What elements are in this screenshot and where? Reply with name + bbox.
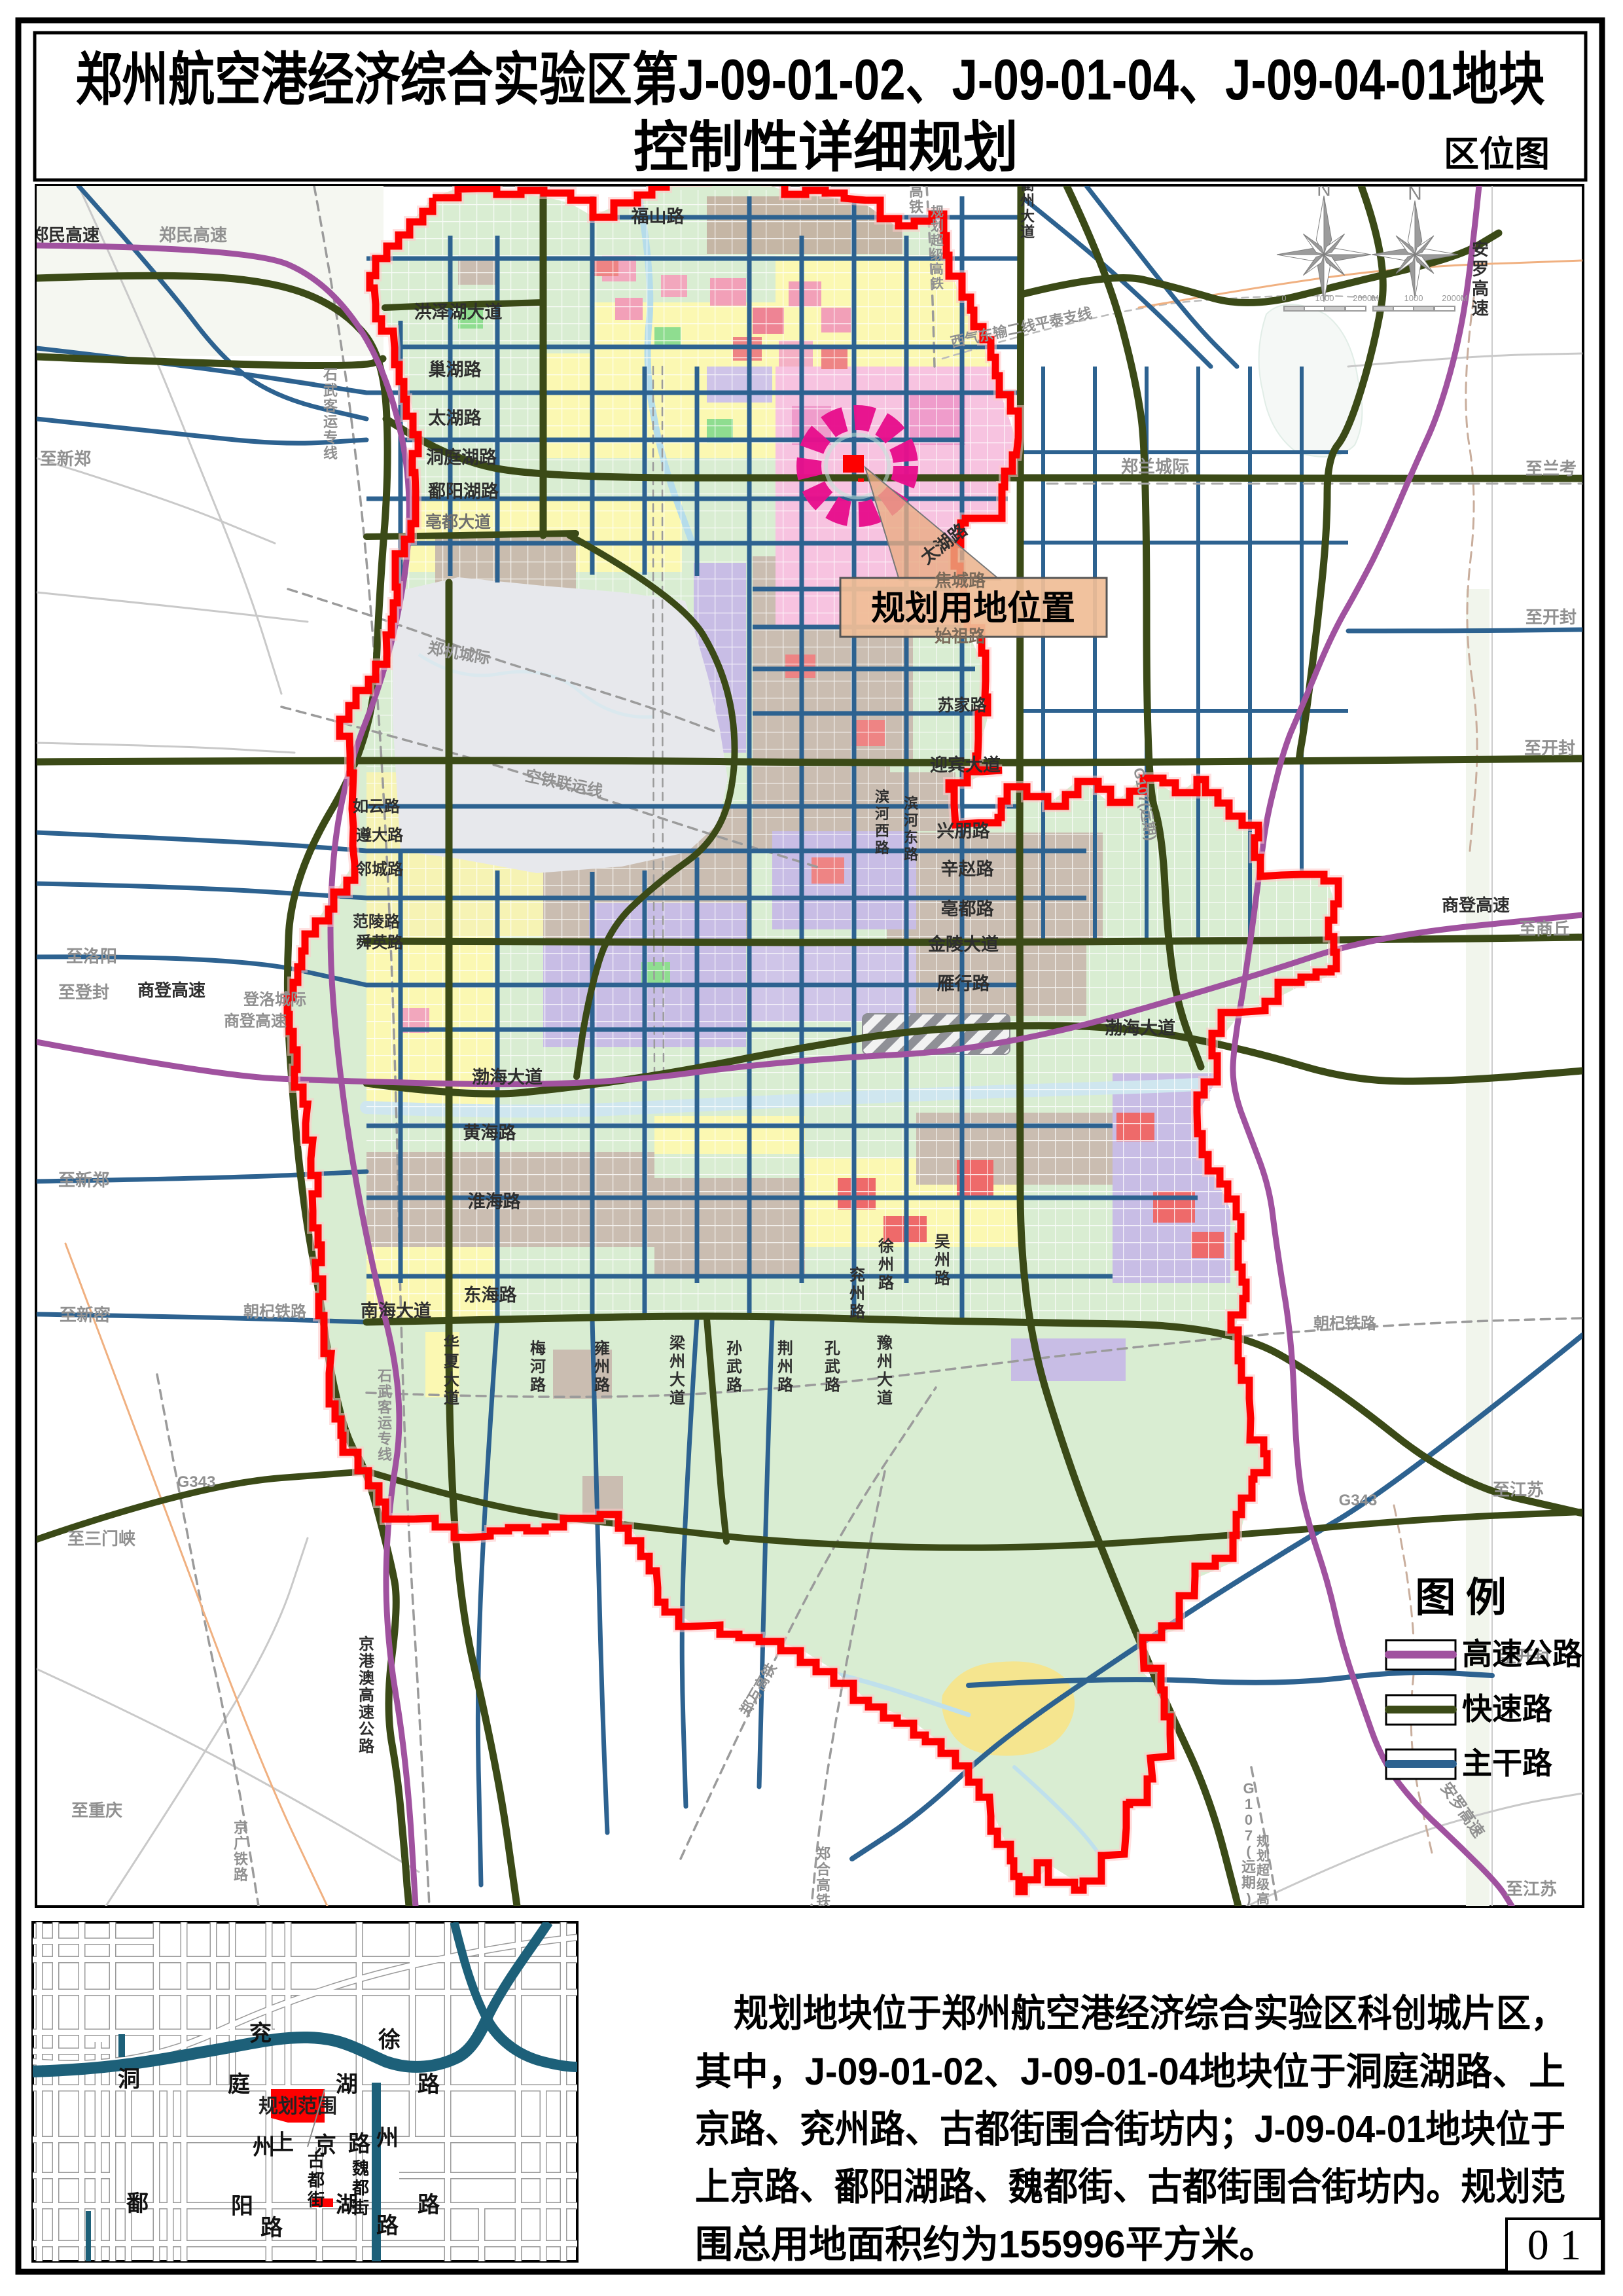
svg-text:规划用地位置: 规划用地位置 [871,590,1075,628]
svg-text:郑兰城际: 郑兰城际 [1121,457,1189,476]
svg-text:渤海大道: 渤海大道 [472,1067,543,1087]
svg-text:商登高速: 商登高速 [224,1012,287,1030]
svg-text:洪泽湖大道: 洪泽湖大道 [414,302,503,322]
svg-text:路: 路 [376,2214,399,2238]
svg-text:亳都大道: 亳都大道 [425,512,491,531]
svg-text:路: 路 [418,2193,440,2217]
svg-text:朝杞铁路: 朝杞铁路 [1313,1314,1377,1333]
svg-text:吴州路: 吴州路 [935,1233,951,1287]
svg-text:0 1: 0 1 [1527,2221,1582,2269]
svg-text:安罗高速: 安罗高速 [1472,240,1489,318]
svg-text:路: 路 [260,2215,283,2240]
svg-text:G343: G343 [177,1473,216,1491]
svg-text:州: 州 [376,2126,399,2151]
svg-text:1000: 1000 [1404,293,1423,303]
svg-text:规划地块位于郑州航空港经济综合实验区科创城片区，: 规划地块位于郑州航空港经济综合实验区科创城片区， [695,1992,1565,2035]
svg-text:至开封: 至开封 [1525,607,1577,627]
svg-text:徐: 徐 [378,2028,401,2053]
svg-text:郑州航空港经济综合实验区第J-09-01-02、J-09-0: 郑州航空港经济综合实验区第J-09-01-02、J-09-01-04、J-09-… [76,47,1545,112]
svg-text:太湖路: 太湖路 [429,408,482,428]
svg-text:商登高速: 商登高速 [1442,895,1510,915]
svg-text:京广铁路: 京广铁路 [234,1820,249,1883]
svg-text:高铁: 高铁 [909,183,923,215]
svg-text:快速路: 快速路 [1462,1693,1553,1726]
svg-text:鄱阳湖路: 鄱阳湖路 [427,481,499,501]
svg-text:如云路: 如云路 [353,797,401,816]
svg-text:范陵路: 范陵路 [353,912,401,931]
svg-text:巢湖路: 巢湖路 [429,359,482,380]
svg-text:魏都街: 魏都街 [351,2159,369,2217]
svg-text:庭: 庭 [228,2072,250,2097]
svg-text:孔武路: 孔武路 [825,1340,841,1394]
svg-text:阳: 阳 [231,2194,253,2219]
svg-text:至重庆: 至重庆 [71,1801,122,1820]
svg-text:主干路: 主干路 [1462,1747,1553,1780]
svg-text:规划范围: 规划范围 [259,2096,337,2117]
svg-text:邻城路: 邻城路 [356,860,404,878]
svg-text:至三门峡: 至三门峡 [67,1529,136,1549]
svg-text:郑民高速: 郑民高速 [159,225,227,245]
svg-text:福山路: 福山路 [631,206,685,226]
svg-text:雍州路: 雍州路 [594,1339,611,1394]
svg-text:古都街: 古都街 [307,2151,325,2210]
svg-text:控制性详细规划: 控制性详细规划 [633,117,1018,178]
svg-text:徐州路: 徐州路 [878,1237,895,1292]
svg-text:至新密: 至新密 [60,1305,111,1325]
svg-text:至开封: 至开封 [1524,738,1575,758]
svg-text:兖州路: 兖州路 [849,1266,866,1321]
svg-text:滨河西路: 滨河西路 [875,789,890,856]
svg-text:雁行路: 雁行路 [937,973,991,994]
svg-text:G343: G343 [1339,1492,1378,1509]
svg-text:登洛城际: 登洛城际 [243,990,306,1009]
svg-text:路: 路 [418,2072,440,2097]
svg-text:兖: 兖 [249,2021,272,2046]
svg-text:洞庭湖路: 洞庭湖路 [426,447,497,467]
svg-text:至江苏: 至江苏 [1493,1480,1544,1499]
svg-text:苏家路: 苏家路 [937,696,987,715]
svg-text:图 例: 图 例 [1415,1575,1507,1621]
svg-text:至新郑: 至新郑 [40,449,91,469]
svg-text:至登封: 至登封 [58,982,109,1002]
svg-text:兴朋路: 兴朋路 [937,821,991,841]
svg-text:至商丘: 至商丘 [1519,919,1570,939]
svg-text:2000M: 2000M [1442,293,1468,303]
svg-text:洞: 洞 [118,2067,140,2092]
svg-text:滨河东路: 滨河东路 [904,795,919,863]
svg-text:0: 0 [1370,293,1375,303]
svg-text:至兰考: 至兰考 [1525,459,1577,478]
svg-text:郑民高速: 郑民高速 [31,225,99,245]
svg-text:郑合高铁: 郑合高铁 [816,1846,831,1909]
svg-text:舜英路: 舜英路 [356,933,404,952]
svg-text:围总用地面积约为155996平方米。: 围总用地面积约为155996平方米。 [695,2223,1277,2266]
svg-text:黄海路: 黄海路 [463,1122,517,1143]
svg-text:迎宾大道: 迎宾大道 [930,755,1001,775]
svg-text:至洛阳: 至洛阳 [66,946,117,966]
svg-text:规划超级高铁: 规划超级高铁 [930,204,944,291]
svg-text:上京路、鄱阳湖路、魏都街、古都街围合街坊内。规划范: 上京路、鄱阳湖路、魏都街、古都街围合街坊内。规划范 [695,2166,1565,2208]
svg-text:鄱: 鄱 [126,2191,149,2216]
svg-text:遵大路: 遵大路 [356,826,404,844]
svg-text:淮海路: 淮海路 [468,1191,522,1211]
svg-text:石武客运专线: 石武客运专线 [377,1368,393,1463]
svg-text:0: 0 [1281,293,1286,303]
svg-text:始祖路: 始祖路 [935,626,986,646]
svg-text:京港澳高速公路: 京港澳高速公路 [359,1635,375,1755]
svg-text:石武客运专线: 石武客运专线 [323,367,338,461]
svg-text:高速公路: 高速公路 [1462,1638,1583,1671]
svg-text:湖: 湖 [336,2072,358,2097]
svg-text:辛赵路: 辛赵路 [941,859,995,879]
svg-text:亳都路: 亳都路 [941,899,995,919]
svg-text:朝杞铁路: 朝杞铁路 [243,1302,307,1321]
svg-text:渤海大道: 渤海大道 [1105,1018,1175,1038]
svg-text:金陵大道: 金陵大道 [927,934,999,954]
svg-text:衢州大道: 衢州大道 [1020,177,1035,240]
svg-text:1000: 1000 [1315,293,1334,303]
svg-text:至江苏: 至江苏 [1506,1879,1557,1899]
svg-text:区位图: 区位图 [1444,135,1550,174]
svg-text:至新郑: 至新郑 [58,1170,109,1190]
svg-text:其中，J-09-01-02、J-09-01-04地块位于洞庭: 其中，J-09-01-02、J-09-01-04地块位于洞庭湖路、上 [695,2051,1565,2093]
svg-text:路: 路 [348,2132,371,2157]
svg-text:商登高速: 商登高速 [137,980,205,1000]
svg-text:上: 上 [272,2130,294,2155]
svg-text:焦城路: 焦城路 [935,571,986,590]
svg-text:南海大道: 南海大道 [361,1300,431,1321]
svg-text:梅河路: 梅河路 [530,1340,546,1394]
svg-text:荆州路: 荆州路 [777,1340,794,1394]
svg-text:孙武路: 孙武路 [726,1340,743,1394]
svg-text:京路、兖州路、古都街围合街坊内；J-09-04-01地块位于: 京路、兖州路、古都街围合街坊内；J-09-04-01地块位于 [695,2108,1565,2151]
svg-text:东海路: 东海路 [464,1285,518,1305]
